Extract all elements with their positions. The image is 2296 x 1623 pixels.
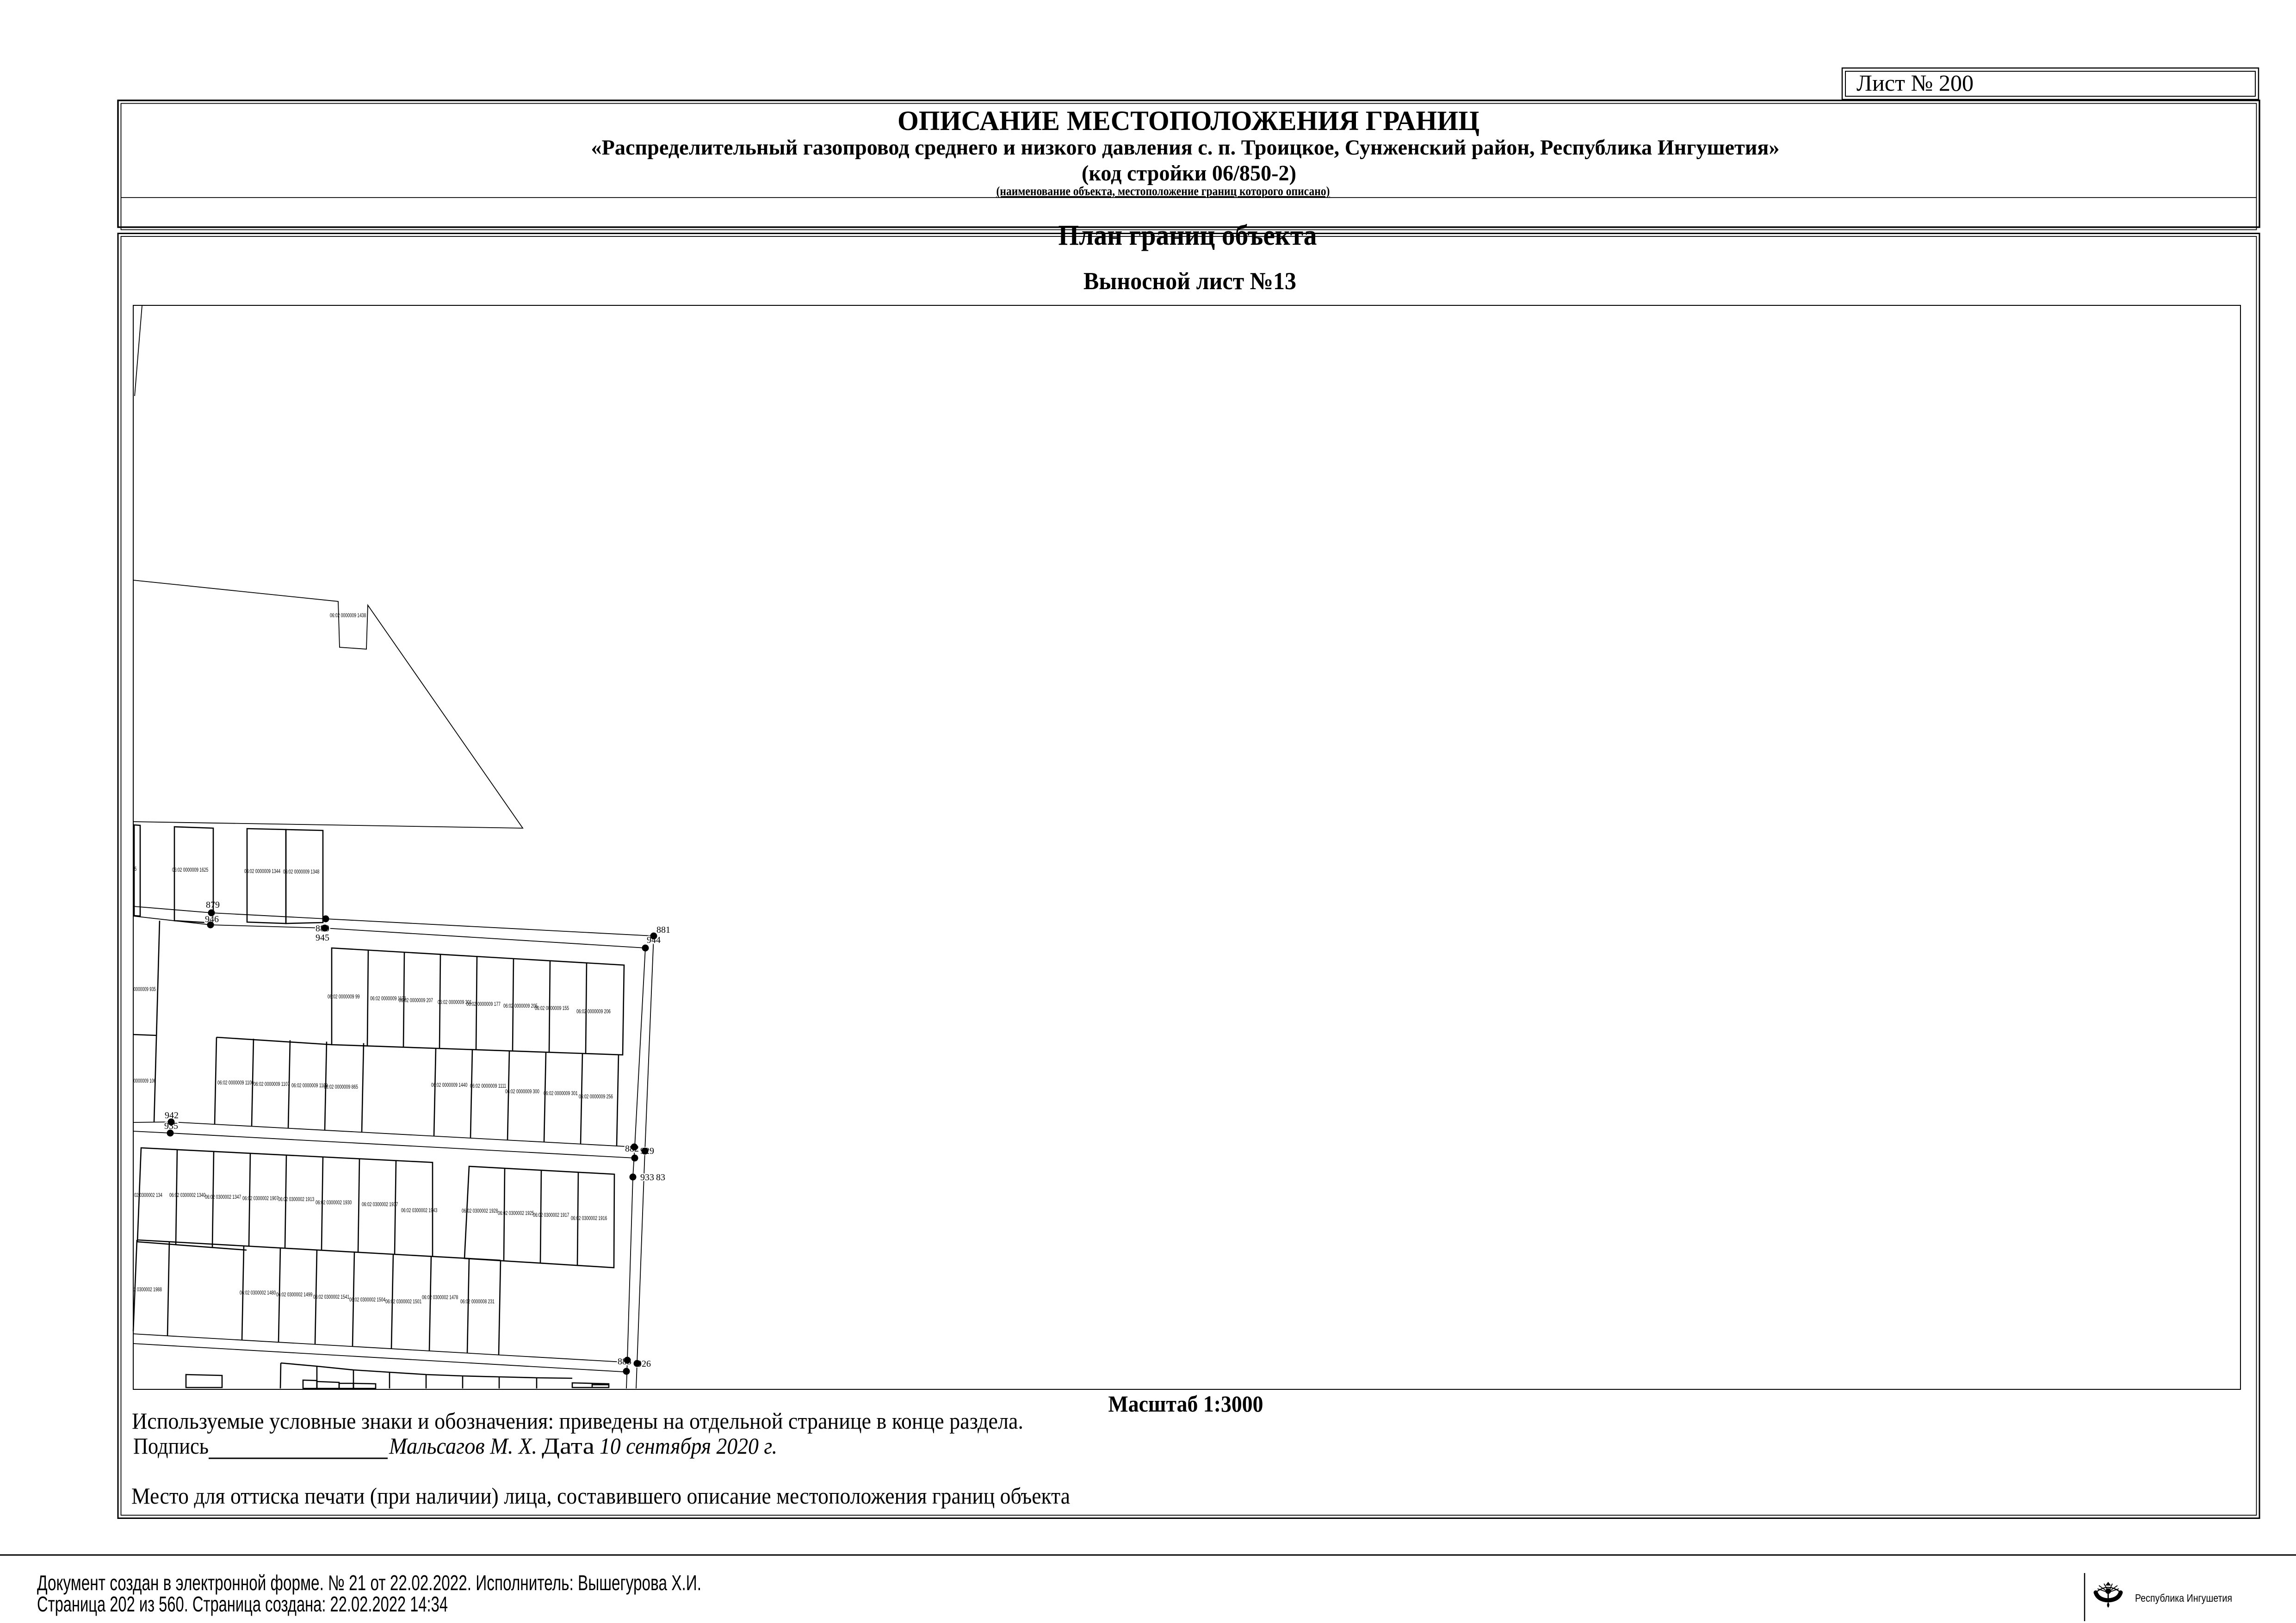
svg-text:06:02 0300002 1925: 06:02 0300002 1925 bbox=[498, 1211, 534, 1216]
svg-text:Лист № 200: Лист № 200 bbox=[1857, 70, 1974, 96]
svg-text:06:02 0000009 865: 06:02 0000009 865 bbox=[324, 1084, 358, 1090]
svg-text:06:02 0300002 1917: 06:02 0300002 1917 bbox=[533, 1213, 569, 1218]
svg-text:06:02 0000009 1111: 06:02 0000009 1111 bbox=[470, 1084, 506, 1089]
svg-text:Дата: Дата bbox=[542, 1433, 594, 1459]
svg-text:06:02 0300002 1504: 06:02 0300002 1504 bbox=[349, 1297, 386, 1303]
svg-text:881: 881 bbox=[656, 925, 670, 935]
svg-text:06:02 0300002 1943: 06:02 0300002 1943 bbox=[401, 1208, 437, 1214]
svg-text:(код стройки 06/850-2): (код стройки 06/850-2) bbox=[1082, 161, 1296, 186]
svg-text:06:02 0000009 1348: 06:02 0000009 1348 bbox=[283, 869, 319, 875]
svg-text:06:02 0000009 1109: 06:02 0000009 1109 bbox=[291, 1083, 328, 1089]
svg-text:Страница 202 из 560. Страница: Страница 202 из 560. Страница создана: 2… bbox=[37, 1592, 448, 1616]
svg-text:06:02 0000009 300: 06:02 0000009 300 bbox=[505, 1089, 539, 1095]
svg-text:Республика Ингушетия: Республика Ингушетия bbox=[2135, 1592, 2232, 1604]
svg-text:06:02 0000009 177: 06:02 0000009 177 bbox=[466, 1002, 501, 1007]
svg-text:06:02 0300002 1340: 06:02 0300002 1340 bbox=[169, 1193, 205, 1198]
svg-text:933: 933 bbox=[640, 1172, 654, 1183]
svg-text:06:02 0000009 301: 06:02 0000009 301 bbox=[544, 1091, 578, 1096]
svg-text:06:02 0000009 1625: 06:02 0000009 1625 bbox=[172, 867, 208, 873]
svg-text:Подпись: Подпись bbox=[133, 1433, 209, 1459]
svg-text:Масштаб 1:3000: Масштаб 1:3000 bbox=[1108, 1391, 1263, 1417]
svg-text:0000009 106: 0000009 106 bbox=[134, 1078, 156, 1084]
svg-text:06:02 0300002 1347: 06:02 0300002 1347 bbox=[205, 1195, 241, 1200]
svg-text:Выносной лист №13: Выносной лист №13 bbox=[1083, 268, 1296, 295]
svg-text:Мальсагов М. Х.: Мальсагов М. Х. bbox=[389, 1433, 537, 1459]
svg-text:06:02 0000009 207: 06:02 0000009 207 bbox=[399, 998, 433, 1004]
svg-text:06:02 0000009 99: 06:02 0000009 99 bbox=[328, 994, 360, 1000]
svg-text:06:02 0000009 155: 06:02 0000009 155 bbox=[535, 1006, 569, 1011]
svg-text:06:02 0300002 1501: 06:02 0300002 1501 bbox=[385, 1299, 421, 1305]
svg-text:(наименование объекта, местопо: (наименование объекта, местоположение гр… bbox=[996, 184, 1330, 198]
svg-text:0000009 935: 0000009 935 bbox=[134, 987, 156, 992]
svg-text:06:02 0000009 206: 06:02 0000009 206 bbox=[576, 1009, 611, 1015]
svg-text:ОПИСАНИЕ МЕСТОПОЛОЖЕНИЯ ГРАНИЦ: ОПИСАНИЕ МЕСТОПОЛОЖЕНИЯ ГРАНИЦ bbox=[897, 105, 1479, 136]
svg-text:Документ создан в электронной: Документ создан в электронной форме. № 2… bbox=[37, 1571, 701, 1595]
svg-text:06:02 0000009 205: 06:02 0000009 205 bbox=[503, 1004, 538, 1009]
svg-text:06:02 0000009 1100: 06:02 0000009 1100 bbox=[217, 1080, 254, 1086]
svg-text:06:02 0300002 1541: 06:02 0300002 1541 bbox=[313, 1295, 349, 1300]
svg-text:06:02 0000009 1344: 06:02 0000009 1344 bbox=[244, 869, 281, 874]
svg-text:06:02 0000009 1107: 06:02 0000009 1107 bbox=[254, 1082, 290, 1087]
svg-text:06:02 0300002 1937: 06:02 0300002 1937 bbox=[362, 1202, 398, 1208]
svg-text:10 сентября 2020 г.: 10 сентября 2020 г. bbox=[600, 1433, 777, 1459]
svg-text:06:02 0300002 1928: 06:02 0300002 1928 bbox=[462, 1208, 498, 1214]
svg-text:06:02 0300002 1499: 06:02 0300002 1499 bbox=[276, 1292, 312, 1298]
svg-text:План границ объекта: План границ объекта bbox=[1058, 220, 1317, 251]
svg-text:06:02 0000009 1438: 06:02 0000009 1438 bbox=[330, 613, 366, 619]
svg-text:02 0300002 134: 02 0300002 134 bbox=[134, 1193, 162, 1198]
svg-text:Место для оттиска печати (при: Место для оттиска печати (при наличии) л… bbox=[131, 1483, 1070, 1509]
svg-text:83: 83 bbox=[656, 1172, 665, 1183]
svg-text:879: 879 bbox=[206, 900, 220, 910]
svg-text:945: 945 bbox=[316, 933, 329, 943]
svg-text:«Распределительный газопровод: «Распределительный газопровод среднего и… bbox=[591, 136, 1780, 160]
svg-text:Используемые условные знаки и: Используемые условные знаки и обозначени… bbox=[132, 1408, 1023, 1434]
svg-text:06:02 0300002 1913: 06:02 0300002 1913 bbox=[278, 1197, 314, 1202]
svg-text:2 0300002 1988: 2 0300002 1988 bbox=[134, 1287, 162, 1293]
svg-text:06:02 0300002 1916: 06:02 0300002 1916 bbox=[571, 1216, 607, 1221]
svg-text:06:02 0000009 256: 06:02 0000009 256 bbox=[579, 1094, 613, 1100]
svg-text:06:02 0000009 1440: 06:02 0000009 1440 bbox=[431, 1083, 467, 1088]
svg-text:06:02 0000008 231: 06:02 0000008 231 bbox=[460, 1299, 495, 1305]
svg-text:06:02 0300002 1480: 06:02 0300002 1480 bbox=[240, 1290, 276, 1296]
svg-text:5: 5 bbox=[135, 867, 136, 872]
svg-text:06:02 0300002 1478: 06:02 0300002 1478 bbox=[422, 1295, 458, 1301]
svg-text:06:02 0300002 1930: 06:02 0300002 1930 bbox=[316, 1200, 352, 1206]
svg-text:06:02 0300002 1907: 06:02 0300002 1907 bbox=[242, 1196, 278, 1202]
